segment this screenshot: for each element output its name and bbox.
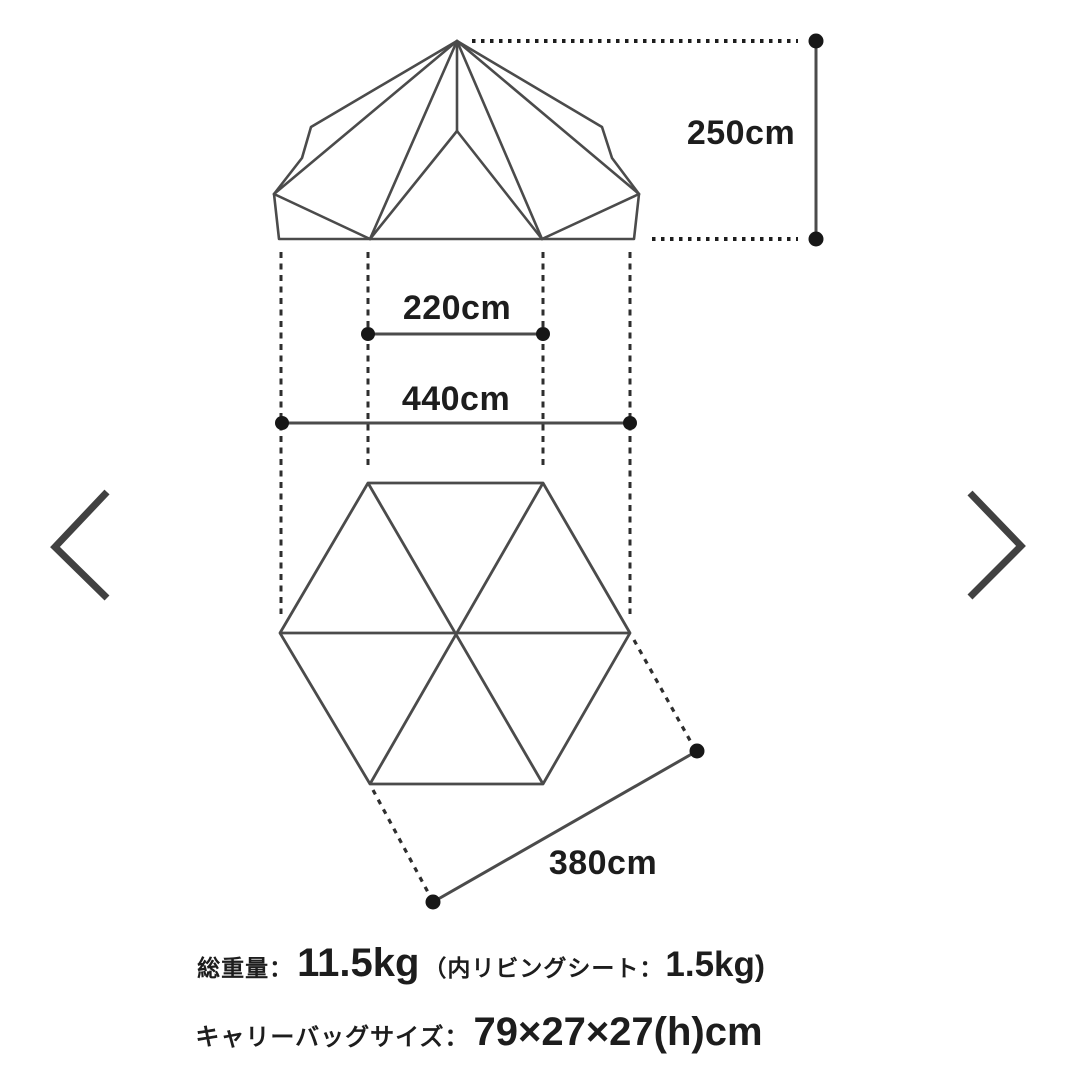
carry-bag-size-caption: キャリーバッグサイズ： 79×27×27(h)cm bbox=[0, 1010, 962, 1055]
carousel-prev-button[interactable] bbox=[40, 480, 116, 610]
tent-dimensions-diagram: 250cm 220cm 440cm bbox=[0, 0, 1079, 1080]
dimension-dot bbox=[809, 34, 824, 49]
dimension-dot bbox=[275, 416, 289, 430]
dimension-dot bbox=[809, 232, 824, 247]
dimension-dot bbox=[536, 327, 550, 341]
bag-size-value: 79×27×27(h)cm bbox=[469, 1010, 766, 1055]
inner-width-dimension: 220cm bbox=[361, 289, 550, 341]
outer-width-dimension: 440cm bbox=[275, 380, 637, 430]
chevron-left-icon bbox=[40, 480, 116, 610]
weight-note-value: 1.5kg bbox=[663, 945, 755, 985]
dimension-dot bbox=[426, 895, 441, 910]
bag-size-label: キャリーバッグサイズ： bbox=[195, 1017, 469, 1052]
side-extension-line-left bbox=[373, 790, 430, 896]
dimension-dot bbox=[361, 327, 375, 341]
product-dimension-image: 250cm 220cm 440cm bbox=[0, 0, 1079, 1080]
tent-side-view-drawing bbox=[274, 41, 639, 239]
weight-label: 総重量： bbox=[197, 949, 293, 983]
dimension-dot bbox=[690, 744, 705, 759]
inner-width-dimension-label: 220cm bbox=[403, 289, 511, 327]
weight-value: 11.5kg bbox=[293, 941, 423, 986]
weight-note-prefix: （内リビングシート： bbox=[423, 949, 663, 983]
chevron-right-icon bbox=[950, 480, 1026, 610]
height-dimension: 250cm bbox=[472, 34, 824, 247]
weight-note-suffix: ) bbox=[755, 950, 765, 984]
side-extension-line-right bbox=[634, 640, 692, 744]
outer-width-dimension-label: 440cm bbox=[402, 380, 510, 418]
dimension-dot bbox=[623, 416, 637, 430]
height-dimension-label: 250cm bbox=[687, 114, 795, 152]
carousel-next-button[interactable] bbox=[950, 480, 1026, 610]
side-length-dimension-label: 380cm bbox=[549, 844, 657, 882]
floor-plan-hexagon-drawing bbox=[280, 483, 630, 784]
total-weight-caption: 総重量： 11.5kg （内リビングシート： 1.5kg ) bbox=[0, 941, 962, 986]
